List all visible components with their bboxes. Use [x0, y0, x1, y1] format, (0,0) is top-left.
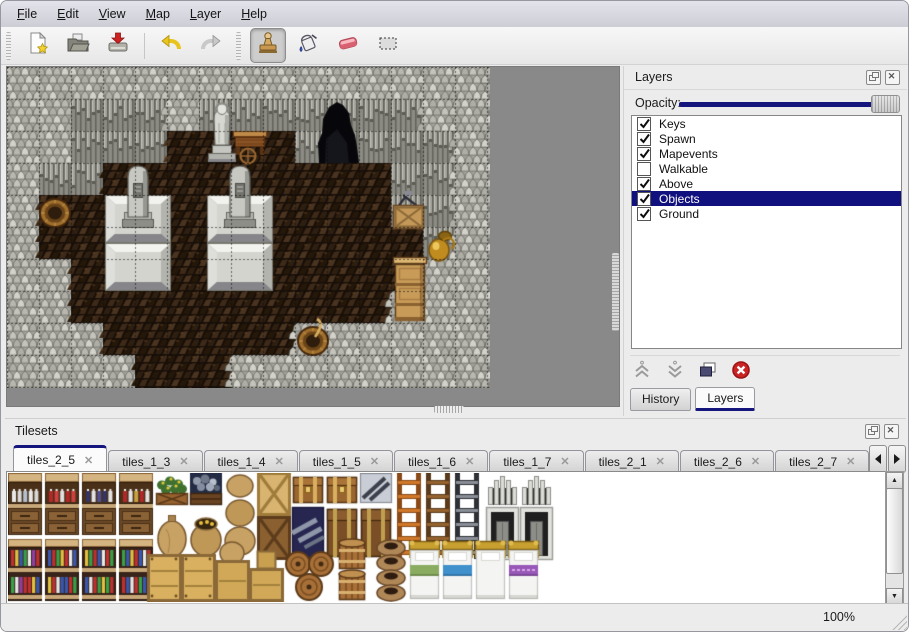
- horizontal-splitter-handle[interactable]: [434, 406, 464, 413]
- redo-icon: [198, 30, 224, 61]
- layer-row-spawn[interactable]: Spawn: [632, 131, 901, 146]
- status-bar: 100%: [1, 603, 908, 631]
- undo-button[interactable]: [153, 28, 189, 63]
- eraser-icon: [335, 30, 361, 61]
- menu-edit[interactable]: Edit: [47, 4, 89, 24]
- layer-name: Walkable: [659, 162, 708, 176]
- close-tab-icon[interactable]: ✕: [751, 455, 760, 468]
- delete-layer-icon: [730, 360, 752, 385]
- layer-row-mapevents[interactable]: Mapevents: [632, 146, 901, 161]
- move-up-icon: [631, 360, 653, 385]
- tileset-tab-tiles_1_3[interactable]: tiles_1_3✕: [108, 450, 202, 472]
- tab-label: tiles_2_1: [599, 455, 647, 469]
- layer-row-walkable[interactable]: Walkable: [632, 161, 901, 176]
- duplicate-layer-icon: [697, 360, 719, 385]
- close-panel-icon[interactable]: [885, 70, 900, 85]
- close-tab-icon[interactable]: ✕: [370, 455, 379, 468]
- tab-label: tiles_1_4: [218, 455, 266, 469]
- layer-row-objects[interactable]: Objects: [632, 191, 901, 206]
- fill-bucket-icon: [295, 30, 321, 61]
- menu-view[interactable]: View: [89, 4, 136, 24]
- float-panel-icon[interactable]: [866, 70, 881, 85]
- tab-label: tiles_2_6: [694, 455, 742, 469]
- stamp-button[interactable]: [250, 28, 286, 63]
- layer-name: Mapevents: [659, 147, 718, 161]
- layer-visibility-checkbox[interactable]: [637, 147, 651, 161]
- tabs-scroll-left-button[interactable]: [869, 445, 887, 473]
- tabs-scroll-right-button[interactable]: [888, 445, 906, 473]
- move-down-button[interactable]: [663, 361, 687, 383]
- close-tab-icon[interactable]: ✕: [846, 455, 855, 468]
- toolbar-drag-handle[interactable]: [6, 32, 11, 60]
- tileset-tab-tiles_1_7[interactable]: tiles_1_7✕: [489, 450, 583, 472]
- map-view-panel: [6, 66, 620, 407]
- tileset-tab-tiles_1_4[interactable]: tiles_1_4✕: [204, 450, 298, 472]
- app-window: FileEditViewMapLayerHelp Layers Opacity:…: [0, 0, 909, 632]
- opacity-label: Opacity:: [635, 96, 681, 110]
- tileset-canvas[interactable]: [8, 473, 568, 602]
- tab-label: tiles_2_7: [789, 455, 837, 469]
- menu-file[interactable]: File: [7, 4, 47, 24]
- save-button[interactable]: [100, 28, 136, 63]
- layer-visibility-checkbox[interactable]: [637, 132, 651, 146]
- close-tab-icon[interactable]: ✕: [465, 455, 474, 468]
- tileset-tab-tiles_2_5[interactable]: tiles_2_5✕: [13, 445, 107, 472]
- layer-name: Above: [659, 177, 693, 191]
- tilesets-panel: Tilesets tiles_2_5✕tiles_1_3✕tiles_1_4✕t…: [5, 418, 906, 605]
- toolbar-separator: [144, 33, 145, 59]
- resize-grip[interactable]: [889, 612, 907, 630]
- close-panel-icon[interactable]: [884, 424, 899, 439]
- layer-row-ground[interactable]: Ground: [632, 206, 901, 221]
- redo-button[interactable]: [193, 28, 229, 63]
- scroll-up-icon[interactable]: ▲: [886, 472, 903, 489]
- menu-layer[interactable]: Layer: [180, 4, 231, 24]
- close-tab-icon[interactable]: ✕: [275, 455, 284, 468]
- opacity-slider[interactable]: [679, 102, 897, 107]
- tab-label: tiles_2_5: [27, 453, 75, 467]
- map-canvas[interactable]: [7, 67, 490, 388]
- layer-list: KeysSpawnMapeventsWalkableAboveObjectsGr…: [631, 115, 902, 349]
- layer-visibility-checkbox[interactable]: [637, 192, 651, 206]
- open-button[interactable]: [60, 28, 96, 63]
- close-tab-icon[interactable]: ✕: [179, 455, 188, 468]
- layer-visibility-checkbox[interactable]: [637, 162, 651, 176]
- tilesets-panel-title: Tilesets: [15, 424, 58, 438]
- tab-label: tiles_1_7: [503, 455, 551, 469]
- tileset-tab-tiles_2_6[interactable]: tiles_2_6✕: [680, 450, 774, 472]
- layer-row-above[interactable]: Above: [632, 176, 901, 191]
- save-icon: [105, 30, 131, 61]
- new-button[interactable]: [20, 28, 56, 63]
- float-panel-icon[interactable]: [865, 424, 880, 439]
- side-tabs: HistoryLayers: [626, 387, 755, 411]
- left-arrow-icon: [875, 454, 881, 464]
- menu-map[interactable]: Map: [136, 4, 180, 24]
- tileset-content: [6, 471, 886, 604]
- tab-label: tiles_1_3: [122, 455, 170, 469]
- layers-panel: Layers Opacity: KeysSpawnMapeventsWalkab…: [623, 66, 907, 416]
- opacity-slider-handle[interactable]: [871, 95, 900, 113]
- tab-label: tiles_1_5: [313, 455, 361, 469]
- layer-name: Spawn: [659, 132, 696, 146]
- zoom-level: 100%: [823, 610, 855, 624]
- close-tab-icon[interactable]: ✕: [560, 455, 569, 468]
- menubar: FileEditViewMapLayerHelp: [1, 1, 908, 28]
- vertical-splitter-handle[interactable]: [612, 253, 619, 331]
- layers-panel-title: Layers: [635, 70, 673, 84]
- delete-layer-button[interactable]: [729, 361, 753, 383]
- duplicate-layer-button[interactable]: [696, 361, 720, 383]
- tileset-tab-tiles_1_5[interactable]: tiles_1_5✕: [299, 450, 393, 472]
- move-down-icon: [664, 360, 686, 385]
- right-arrow-icon: [894, 454, 900, 464]
- tileset-tab-tiles_1_6[interactable]: tiles_1_6✕: [394, 450, 488, 472]
- layer-name: Objects: [659, 192, 700, 206]
- layer-visibility-checkbox[interactable]: [637, 207, 651, 221]
- layer-row-keys[interactable]: Keys: [632, 116, 901, 131]
- tileset-tab-tiles_2_7[interactable]: tiles_2_7✕: [775, 450, 869, 472]
- layer-name: Keys: [659, 117, 686, 131]
- undo-icon: [158, 30, 184, 61]
- tab-layers[interactable]: Layers: [695, 387, 755, 411]
- fill-button[interactable]: [290, 28, 326, 63]
- tab-history[interactable]: History: [630, 388, 691, 411]
- toolbar-drag-handle[interactable]: [236, 32, 241, 60]
- toolbar: [1, 27, 908, 65]
- layer-visibility-checkbox[interactable]: [637, 177, 651, 191]
- close-tab-icon[interactable]: ✕: [656, 455, 665, 468]
- layer-name: Ground: [659, 207, 699, 221]
- scrollbar-thumb[interactable]: [886, 488, 903, 574]
- layer-visibility-checkbox[interactable]: [637, 117, 651, 131]
- tileset-tab-tiles_2_1[interactable]: tiles_2_1✕: [585, 450, 679, 472]
- open-folder-icon: [65, 30, 91, 61]
- select-button[interactable]: [370, 28, 406, 63]
- menu-help[interactable]: Help: [231, 4, 277, 24]
- close-tab-icon[interactable]: ✕: [84, 454, 93, 467]
- move-up-button[interactable]: [630, 361, 654, 383]
- tileset-tabbar: tiles_2_5✕tiles_1_3✕tiles_1_4✕tiles_1_5✕…: [13, 443, 875, 472]
- select-rect-icon: [375, 30, 401, 61]
- tileset-scrollbar[interactable]: ▲ ▼: [885, 471, 904, 606]
- layer-actions: [630, 355, 900, 383]
- stamp-tool-icon: [255, 30, 281, 61]
- tab-label: tiles_1_6: [408, 455, 456, 469]
- new-file-icon: [25, 30, 51, 61]
- eraser-button[interactable]: [330, 28, 366, 63]
- layers-panel-header: Layers: [624, 66, 907, 90]
